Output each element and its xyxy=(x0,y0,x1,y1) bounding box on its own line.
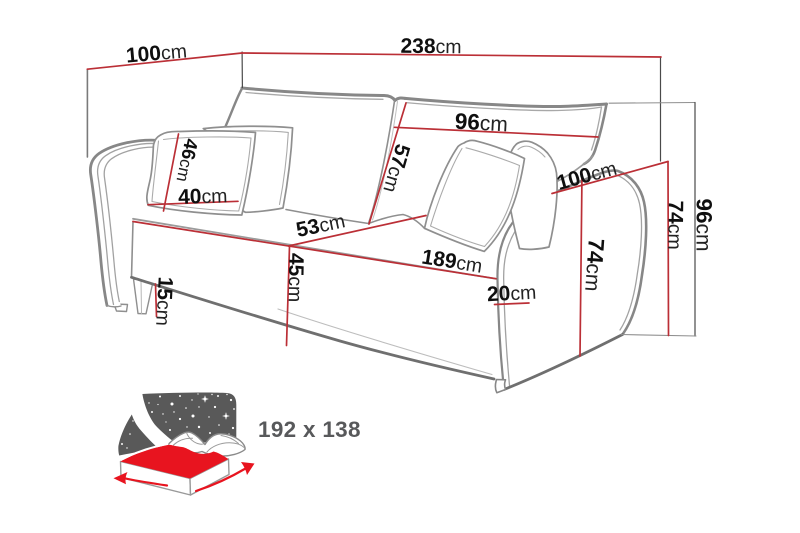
svg-text:74cm: 74cm xyxy=(663,200,687,250)
svg-text:20cm: 20cm xyxy=(486,281,536,307)
svg-text:192 x 138: 192 x 138 xyxy=(258,417,361,442)
svg-text:74cm: 74cm xyxy=(580,238,609,293)
svg-text:40cm: 40cm xyxy=(178,184,228,209)
svg-text:15cm: 15cm xyxy=(151,276,177,326)
svg-text:45cm: 45cm xyxy=(284,253,308,303)
svg-text:238cm: 238cm xyxy=(400,35,461,59)
svg-text:96cm: 96cm xyxy=(692,198,717,251)
svg-text:53cm: 53cm xyxy=(294,209,347,242)
svg-text:100cm: 100cm xyxy=(125,39,188,67)
svg-text:57cm: 57cm xyxy=(378,141,414,195)
svg-text:96cm: 96cm xyxy=(454,109,508,137)
